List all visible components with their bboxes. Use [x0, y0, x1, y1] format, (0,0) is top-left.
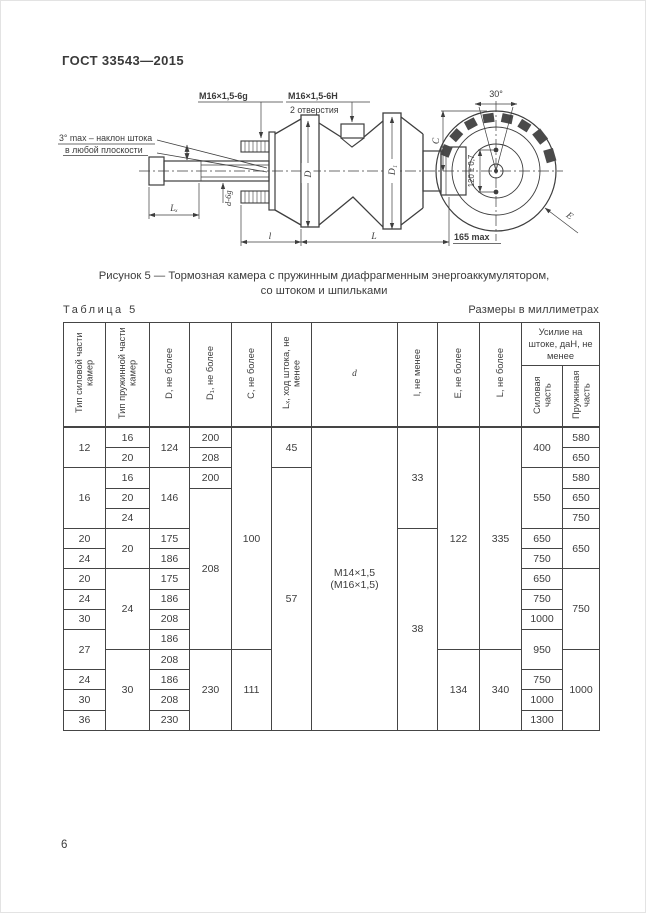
table-cell: 186 [150, 549, 190, 569]
table-cell: 27 [64, 629, 106, 669]
col-header-e-max: E, не более [438, 323, 480, 428]
table-cell: 100 [232, 427, 272, 650]
table-cell: 208 [190, 488, 232, 650]
table-cell: 200 [190, 468, 232, 488]
table-cell: 38 [398, 528, 438, 730]
table-cell: 1000 [563, 650, 600, 731]
table-cell: 750 [522, 589, 563, 609]
figure-caption: Рисунок 5 — Тормозная камера с пружинным… [1, 269, 646, 299]
table-cell: 20 [106, 528, 150, 568]
col-header-force-power: Силовая часть [522, 366, 563, 428]
table-cell: 186 [150, 629, 190, 649]
page-number: 6 [61, 839, 67, 851]
table-cell: 146 [150, 468, 190, 529]
col-header-force-group: Усилие на штоке, даН, не менее [522, 323, 600, 366]
table-cell: 208 [150, 650, 190, 670]
table-cell: 24 [64, 670, 106, 690]
table-cell: 650 [522, 569, 563, 589]
col-header-spring-type: Тип пружинной части камер [106, 323, 150, 428]
figure-drawing: 3° max – наклон штока в любой плоскости … [51, 77, 611, 269]
table-body: 121612420010045M14×1,5 (M16×1,5)33122335… [64, 427, 600, 730]
table-cell: 134 [438, 650, 480, 731]
table-cell: 1000 [522, 609, 563, 629]
figure-caption-line1: Рисунок 5 — Тормозная камера с пружинным… [1, 269, 646, 284]
label-dim-d: D [304, 170, 314, 178]
table-cell: 30 [106, 650, 150, 731]
table-cell: 650 [563, 448, 600, 468]
table-cell: 230 [190, 650, 232, 731]
col-header-d-max: D, не более [150, 323, 190, 428]
dimensions-table: Тип силовой части камер Тип пружинной ча… [63, 322, 600, 731]
table-cell: 124 [150, 427, 190, 468]
label-dim-120: 120 ± 0,7 [467, 155, 476, 187]
col-header-l-min: l, не менее [398, 323, 438, 428]
table-cell: 1300 [522, 710, 563, 730]
table-cell: 650 [563, 488, 600, 508]
table-cell: 20 [64, 569, 106, 589]
table-cell: 750 [563, 508, 600, 528]
table-cell: 186 [150, 589, 190, 609]
col-header-l-big-max: L, не более [480, 323, 522, 428]
table-cell: 30 [64, 690, 106, 710]
label-dim-d1: D₁ [388, 165, 398, 176]
table-cell: 57 [272, 468, 312, 730]
table-cell: 16 [106, 427, 150, 448]
table-cell: 36 [64, 710, 106, 730]
table-cell: 12 [64, 427, 106, 468]
label-rod-dia: d-6g [223, 190, 233, 206]
label-dim-lx: Lₓ [169, 203, 178, 213]
table-cell: 950 [522, 629, 563, 669]
label-holes-count: 2 отверстия [290, 105, 339, 115]
table-cell: M14×1,5 (M16×1,5) [312, 427, 398, 730]
table-cell: 335 [480, 427, 522, 650]
table-cell: 122 [438, 427, 480, 650]
col-header-d-thread: d [312, 323, 398, 428]
doc-number: ГОСТ 33543—2015 [62, 53, 184, 68]
label-holes-thread: M16×1,5-6H [288, 91, 338, 101]
col-header-lx-stroke: Lₓ, ход штока, не менее [272, 323, 312, 428]
col-header-force-spring: Пружинная часть [563, 366, 600, 428]
label-dim-e: E [563, 210, 575, 222]
table-cell: 340 [480, 650, 522, 731]
table-cell: 750 [563, 569, 600, 650]
table-cell: 111 [232, 650, 272, 731]
table-cell: 175 [150, 569, 190, 589]
table-cell: 650 [563, 528, 600, 568]
table-cell: 750 [522, 670, 563, 690]
table-units-note: Размеры в миллиметрах [468, 304, 599, 316]
table-cell: 580 [563, 468, 600, 488]
table-cell: 550 [522, 468, 563, 529]
label-dim-30: 30° [489, 89, 503, 99]
table-cell: 20 [106, 488, 150, 508]
col-header-power-type: Тип силовой части камер [64, 323, 106, 428]
label-dim-l-small: l [269, 232, 272, 242]
label-rod-thread: M16×1,5-6g [199, 91, 248, 101]
label-dim-165: 165 max [454, 232, 490, 242]
table-cell: 186 [150, 670, 190, 690]
table-cell: 230 [150, 710, 190, 730]
table-cell: 208 [150, 690, 190, 710]
col-header-c-max: C, не более [232, 323, 272, 428]
table-cell: 20 [64, 528, 106, 548]
table-cell: 750 [522, 549, 563, 569]
table-cell: 24 [64, 589, 106, 609]
figure-caption-line2: со штоком и шпильками [1, 284, 646, 299]
table-label: Таблица 5 [63, 304, 138, 316]
table-cell: 580 [563, 427, 600, 448]
table-cell: 16 [106, 468, 150, 488]
table-row: 121612420010045M14×1,5 (M16×1,5)33122335… [64, 427, 600, 448]
label-dim-l-big: L [370, 232, 376, 242]
label-tilt-line1: 3° max – наклон штока [59, 133, 152, 143]
label-dim-c: C [432, 137, 442, 144]
label-tilt-line2: в любой плоскости [65, 145, 143, 155]
table-cell: 1000 [522, 690, 563, 710]
table-cell: 30 [64, 609, 106, 629]
table-cell: 208 [150, 609, 190, 629]
table-cell: 24 [64, 549, 106, 569]
brake-chamber-drawing: 3° max – наклон штока в любой плоскости … [51, 77, 611, 269]
table-cell: 175 [150, 528, 190, 548]
table-cell: 24 [106, 569, 150, 650]
table-meta: Таблица 5 Размеры в миллиметрах [63, 304, 599, 316]
document-page: ГОСТ 33543—2015 [0, 0, 646, 913]
table-cell: 200 [190, 427, 232, 448]
table-cell: 20 [106, 448, 150, 468]
table-cell: 33 [398, 427, 438, 528]
col-header-d1-max: D₁, не более [190, 323, 232, 428]
table-cell: 650 [522, 528, 563, 548]
table-cell: 208 [190, 448, 232, 468]
table-cell: 400 [522, 427, 563, 468]
table-cell: 16 [64, 468, 106, 529]
table-cell: 24 [106, 508, 150, 528]
table-cell: 45 [272, 427, 312, 468]
